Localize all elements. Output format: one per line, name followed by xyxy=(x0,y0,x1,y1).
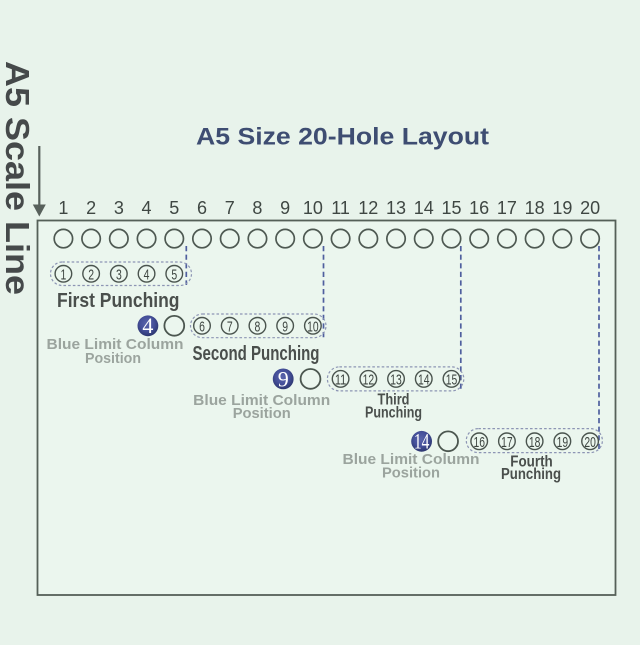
svg-text:19: 19 xyxy=(557,434,569,451)
svg-text:4: 4 xyxy=(144,266,150,283)
svg-text:20: 20 xyxy=(580,198,600,218)
svg-text:Second Punching: Second Punching xyxy=(193,343,320,365)
svg-text:16: 16 xyxy=(469,198,489,218)
svg-text:5: 5 xyxy=(169,198,179,218)
svg-text:Position: Position xyxy=(85,350,141,367)
svg-text:4: 4 xyxy=(142,313,153,338)
svg-text:8: 8 xyxy=(252,198,262,218)
svg-text:7: 7 xyxy=(225,198,235,218)
svg-text:17: 17 xyxy=(497,198,517,218)
svg-text:11: 11 xyxy=(331,198,350,218)
svg-text:3: 3 xyxy=(114,198,124,218)
svg-text:9: 9 xyxy=(282,318,288,335)
svg-text:Punching: Punching xyxy=(501,466,561,483)
svg-text:18: 18 xyxy=(529,434,541,451)
svg-text:A5 Scale Line: A5 Scale Line xyxy=(0,61,36,295)
svg-text:20: 20 xyxy=(584,434,596,451)
svg-text:18: 18 xyxy=(525,198,545,218)
svg-text:5: 5 xyxy=(171,266,177,283)
svg-text:6: 6 xyxy=(197,198,207,218)
svg-text:Position: Position xyxy=(382,464,440,481)
svg-text:Position: Position xyxy=(233,405,291,422)
svg-text:Punching: Punching xyxy=(365,405,422,422)
svg-text:2: 2 xyxy=(86,198,96,218)
svg-text:9: 9 xyxy=(278,366,289,391)
svg-text:A5 Size 20-Hole Layout: A5 Size 20-Hole Layout xyxy=(196,124,489,151)
svg-text:17: 17 xyxy=(501,434,513,451)
svg-text:10: 10 xyxy=(307,318,319,335)
svg-text:4: 4 xyxy=(142,198,152,218)
svg-text:1: 1 xyxy=(58,198,68,218)
svg-text:15: 15 xyxy=(446,371,458,388)
svg-text:8: 8 xyxy=(255,318,261,335)
svg-text:11: 11 xyxy=(335,371,347,388)
svg-text:13: 13 xyxy=(390,371,402,388)
svg-text:13: 13 xyxy=(386,198,406,218)
svg-text:2: 2 xyxy=(88,266,94,283)
svg-text:10: 10 xyxy=(303,198,323,218)
svg-text:12: 12 xyxy=(363,371,375,388)
svg-text:12: 12 xyxy=(358,198,378,218)
svg-text:6: 6 xyxy=(199,318,205,335)
svg-text:16: 16 xyxy=(473,434,485,451)
svg-text:15: 15 xyxy=(441,198,461,218)
svg-text:3: 3 xyxy=(116,266,122,283)
svg-text:7: 7 xyxy=(227,318,233,335)
svg-text:First Punching: First Punching xyxy=(57,290,180,312)
svg-text:1: 1 xyxy=(61,266,67,283)
svg-text:9: 9 xyxy=(280,198,290,218)
svg-text:14: 14 xyxy=(414,198,434,218)
svg-text:14: 14 xyxy=(418,371,430,388)
svg-text:14: 14 xyxy=(414,429,430,454)
svg-text:19: 19 xyxy=(552,198,572,218)
